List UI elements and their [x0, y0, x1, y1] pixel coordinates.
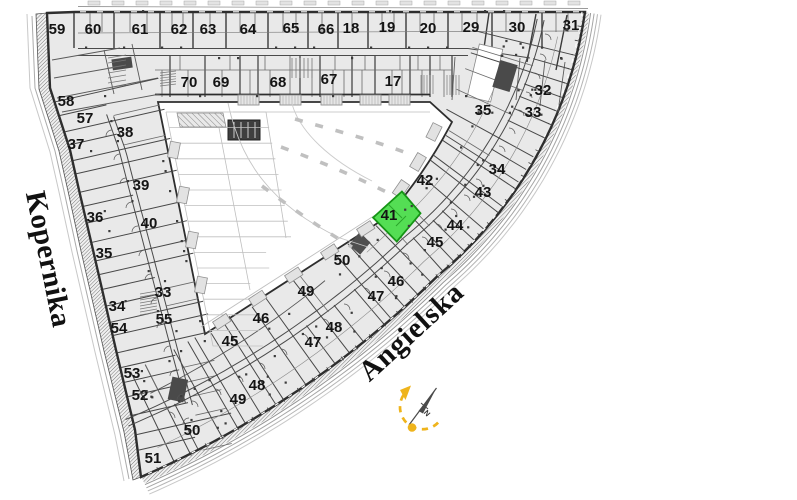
svg-text:34: 34: [109, 298, 126, 315]
svg-text:Kopernika: Kopernika: [19, 188, 78, 330]
svg-text:68: 68: [270, 74, 287, 91]
svg-text:46: 46: [253, 310, 270, 327]
svg-text:64: 64: [240, 21, 257, 38]
svg-text:66: 66: [318, 21, 335, 38]
svg-text:48: 48: [249, 377, 266, 394]
svg-text:59: 59: [49, 21, 66, 38]
svg-text:29: 29: [463, 19, 480, 36]
svg-text:69: 69: [213, 74, 230, 91]
svg-text:52: 52: [132, 387, 149, 404]
svg-text:41: 41: [381, 207, 398, 224]
svg-text:55: 55: [156, 311, 173, 328]
svg-text:53: 53: [124, 365, 141, 382]
svg-text:50: 50: [334, 252, 351, 269]
svg-text:33: 33: [525, 104, 542, 121]
svg-text:51: 51: [145, 450, 162, 467]
svg-text:40: 40: [141, 215, 158, 232]
svg-text:57: 57: [77, 110, 94, 127]
svg-text:65: 65: [283, 20, 300, 37]
svg-text:63: 63: [200, 21, 217, 38]
svg-text:37: 37: [68, 136, 85, 153]
svg-text:62: 62: [171, 21, 188, 38]
svg-text:33: 33: [155, 284, 172, 301]
svg-text:50: 50: [184, 422, 201, 439]
svg-text:60: 60: [85, 21, 102, 38]
svg-text:35: 35: [96, 245, 113, 262]
svg-text:54: 54: [111, 320, 128, 337]
svg-text:70: 70: [181, 74, 198, 91]
svg-text:61: 61: [132, 21, 149, 38]
svg-text:31: 31: [563, 17, 580, 34]
svg-text:38: 38: [117, 124, 134, 141]
svg-text:45: 45: [427, 234, 444, 251]
svg-text:35: 35: [475, 102, 492, 119]
svg-text:67: 67: [321, 71, 338, 88]
svg-text:17: 17: [385, 73, 402, 90]
svg-text:36: 36: [87, 209, 104, 226]
svg-text:49: 49: [230, 391, 247, 408]
svg-text:49: 49: [298, 283, 315, 300]
svg-text:42: 42: [417, 172, 434, 189]
svg-text:20: 20: [420, 20, 437, 37]
svg-text:47: 47: [368, 288, 385, 305]
svg-text:44: 44: [447, 217, 464, 234]
svg-text:39: 39: [133, 177, 150, 194]
svg-text:58: 58: [58, 93, 75, 110]
svg-text:30: 30: [509, 19, 526, 36]
svg-text:18: 18: [343, 20, 360, 37]
svg-text:19: 19: [379, 19, 396, 36]
svg-text:32: 32: [535, 82, 552, 99]
svg-text:45: 45: [222, 333, 239, 350]
